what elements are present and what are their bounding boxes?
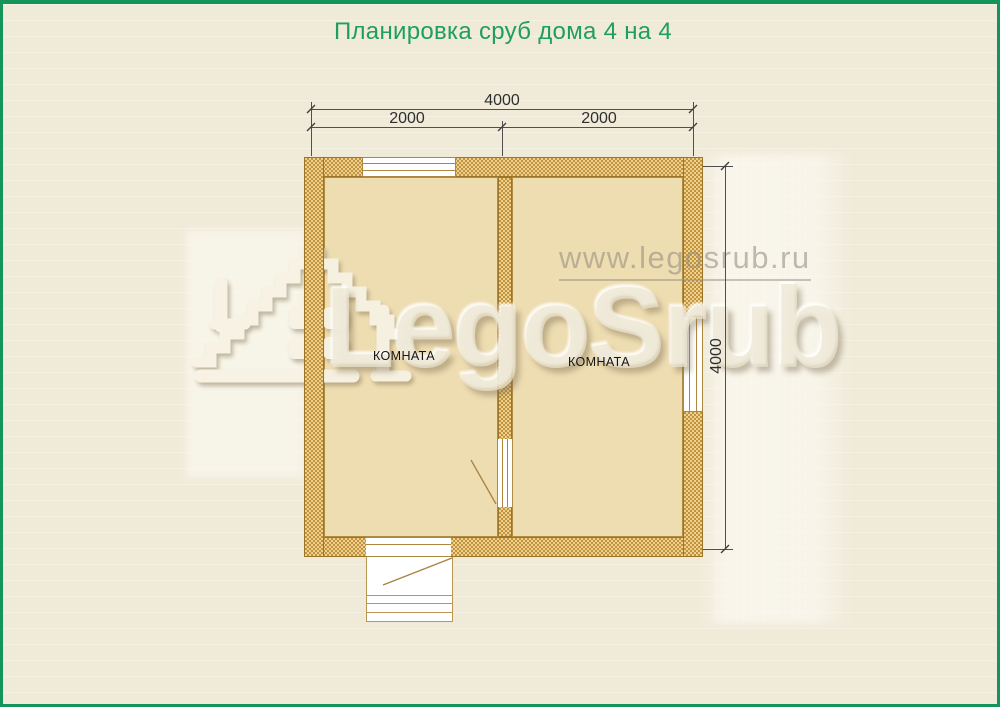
porch-diagonal-line xyxy=(383,558,452,585)
dim-height-total: 4000 xyxy=(708,326,726,386)
door-swing-line xyxy=(471,460,496,504)
dim-width-right: 2000 xyxy=(569,110,629,128)
dim-width-total: 4000 xyxy=(472,92,532,110)
page-title: Планировка сруб дома 4 на 4 xyxy=(3,18,1000,46)
page-background: Планировка сруб дома 4 на 4 xyxy=(0,0,1000,707)
room-label-right: КОМНАТА xyxy=(559,355,639,369)
room-label-left: КОМНАТА xyxy=(364,349,444,363)
dimension-lines xyxy=(3,4,1000,711)
dimension-ticks xyxy=(307,105,729,553)
dim-width-left: 2000 xyxy=(377,110,437,128)
